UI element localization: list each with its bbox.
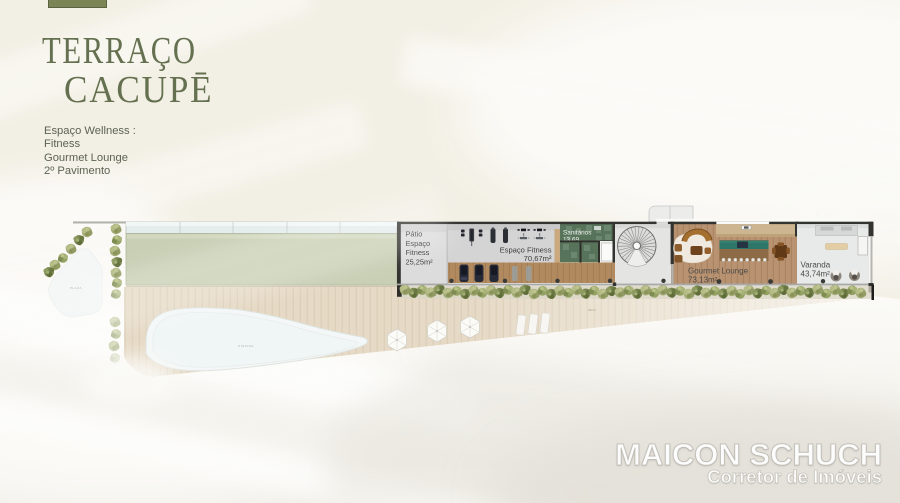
svg-text:25,25m²: 25,25m² bbox=[406, 257, 434, 266]
svg-text:13,69: 13,69 bbox=[563, 237, 579, 244]
svg-text:70,67m²: 70,67m² bbox=[524, 254, 552, 263]
svg-text:Espaço Fitness: Espaço Fitness bbox=[500, 245, 552, 254]
svg-text:DECK: DECK bbox=[588, 308, 596, 312]
svg-text:Gourmet Lounge: Gourmet Lounge bbox=[688, 267, 749, 276]
svg-text:Varanda: Varanda bbox=[801, 261, 831, 270]
svg-text:43,74m²: 43,74m² bbox=[801, 270, 831, 279]
svg-text:Sanitários: Sanitários bbox=[563, 230, 591, 237]
svg-text:73,13m²: 73,13m² bbox=[688, 276, 718, 285]
svg-text:PLAZA: PLAZA bbox=[70, 286, 82, 290]
svg-text:PISCINA: PISCINA bbox=[238, 344, 254, 348]
